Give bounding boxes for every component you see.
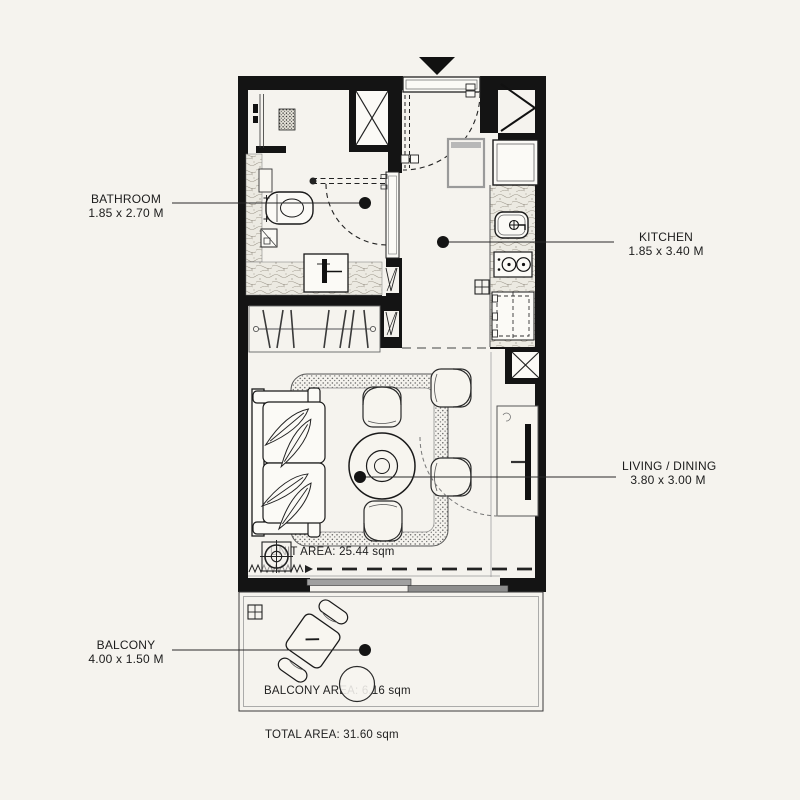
shaft-icon-right (505, 346, 546, 384)
balcony-label: BALCONY 4.00 x 1.50 M (88, 638, 164, 666)
kitchen-name: KITCHEN (628, 230, 704, 244)
total-area-text: TOTAL AREA: 31.60 sqm (265, 729, 399, 741)
fridge-icon (493, 140, 538, 185)
entry-cabinet (448, 139, 484, 187)
floor-drain-icon-bathroom (261, 229, 277, 247)
bathroom-name: BATHROOM (88, 192, 164, 206)
wall-niche (259, 169, 272, 192)
living-dining-label: LIVING / DINING 3.80 x 3.00 M (622, 459, 714, 487)
bistro-set (272, 595, 355, 688)
balcony-dimensions: 4.00 x 1.50 M (88, 652, 164, 666)
hob-icon (494, 252, 532, 277)
bathroom-pocket-door (386, 172, 399, 258)
washbasin-icon (304, 254, 348, 292)
dining-table (349, 433, 415, 499)
unit-area-text: UNIT AREA: 25.44 sqm (270, 546, 395, 558)
sofa (252, 388, 325, 537)
washer-icon (492, 292, 534, 340)
kitchen-dimensions: 1.85 x 3.40 M (628, 244, 704, 258)
shower-icon (253, 94, 264, 148)
sliding-door (307, 579, 508, 592)
shower-drain-icon (279, 109, 295, 130)
tv-icon (525, 424, 531, 500)
balcony-name: BALCONY (88, 638, 164, 652)
tv-console (497, 406, 538, 516)
bathroom-door-swing (310, 175, 388, 246)
entry-marker-icon (419, 57, 455, 75)
living-dining-name: LIVING / DINING (622, 459, 714, 473)
curtain-line (249, 565, 541, 573)
floor-drain-icon-kitchen (475, 280, 489, 294)
dining-chair-bottom (364, 501, 402, 541)
living-dining-dimensions: 3.80 x 3.00 M (622, 473, 714, 487)
sink-icon (495, 212, 528, 238)
dining-chair-top-right (431, 369, 471, 407)
floor-drain-icon-balcony (248, 605, 262, 619)
living-room (248, 369, 541, 576)
bathroom-dimensions: 1.85 x 2.70 M (88, 206, 164, 220)
bathroom-label: BATHROOM 1.85 x 2.70 M (88, 192, 164, 220)
kitchen-label: KITCHEN 1.85 x 3.40 M (628, 230, 704, 258)
dining-chair-top (363, 387, 401, 427)
balcony-area-text: BALCONY AREA: 6.16 sqm (264, 685, 411, 697)
floor-plan-canvas: BATHROOM 1.85 x 2.70 M KITCHEN 1.85 x 3.… (0, 0, 800, 800)
toilet-icon (264, 192, 314, 224)
floor-plan-drawing (0, 0, 800, 800)
shaft-icon-top (349, 84, 395, 152)
duct-icon (501, 84, 535, 131)
wardrobe (249, 306, 380, 352)
